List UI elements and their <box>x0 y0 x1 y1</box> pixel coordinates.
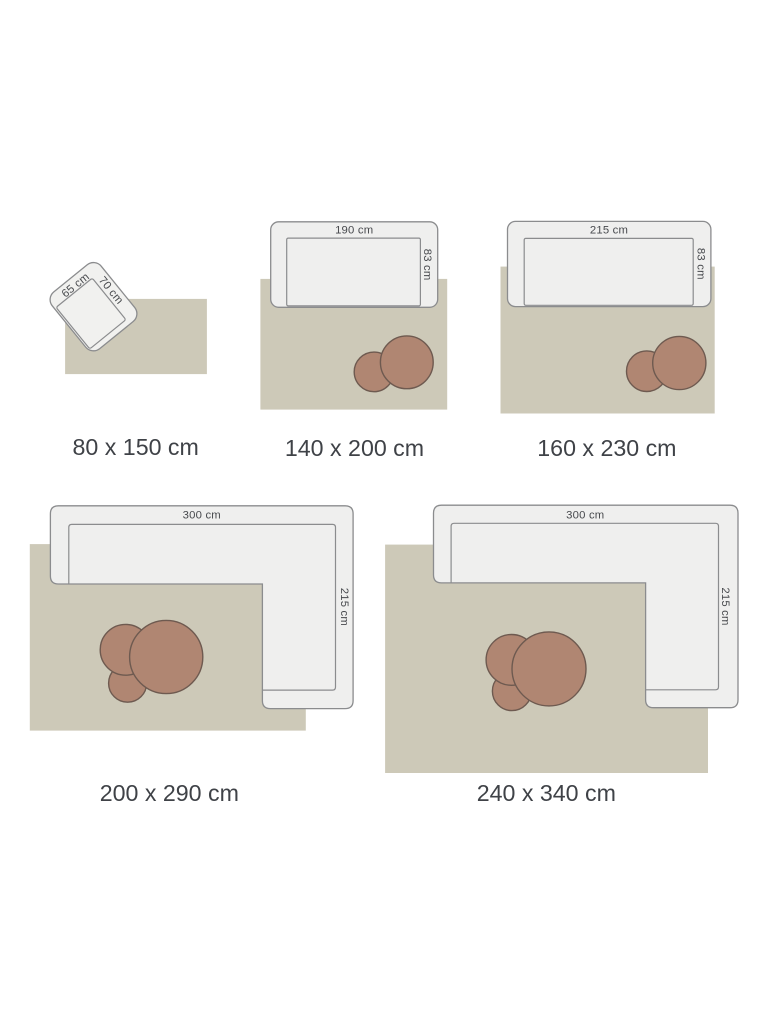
svg-text:140 x 200 cm: 140 x 200 cm <box>285 435 424 461</box>
svg-text:215 cm: 215 cm <box>590 225 628 237</box>
svg-text:80 x 150 cm: 80 x 150 cm <box>73 434 199 460</box>
svg-text:83 cm: 83 cm <box>421 249 433 281</box>
svg-text:300 cm: 300 cm <box>183 509 221 521</box>
svg-text:300 cm: 300 cm <box>566 509 604 521</box>
svg-text:215 cm: 215 cm <box>338 588 350 626</box>
svg-text:83 cm: 83 cm <box>695 248 707 280</box>
svg-text:190 cm: 190 cm <box>335 225 373 237</box>
svg-text:160 x 230 cm: 160 x 230 cm <box>537 435 676 461</box>
svg-text:215 cm: 215 cm <box>719 587 731 625</box>
svg-text:200 x 290 cm: 200 x 290 cm <box>100 780 239 806</box>
svg-text:240 x 340 cm: 240 x 340 cm <box>477 780 616 806</box>
